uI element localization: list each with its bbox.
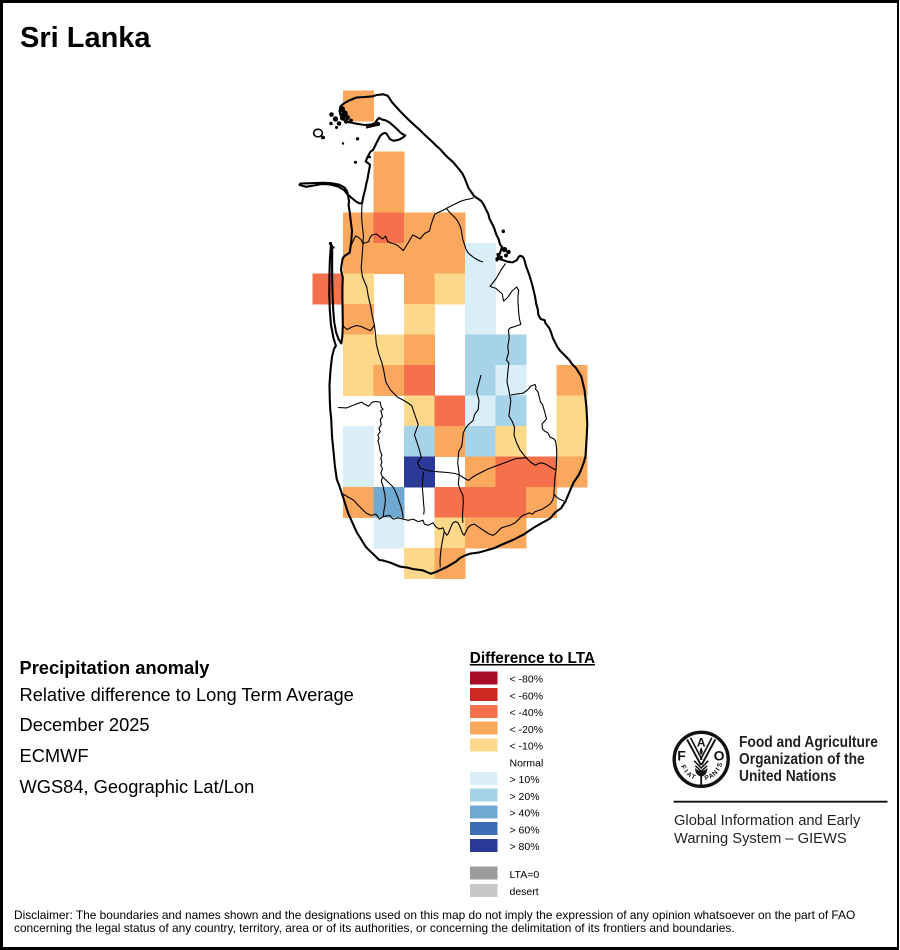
svg-text:> 20%: > 20% [510, 791, 540, 803]
svg-text:O: O [714, 748, 725, 764]
svg-text:> 10%: > 10% [510, 774, 540, 786]
svg-text:< -20%: < -20% [510, 724, 544, 736]
svg-text:desert: desert [510, 886, 539, 898]
svg-text:Normal: Normal [510, 757, 544, 769]
svg-text:> 60%: > 60% [510, 824, 540, 836]
svg-text:F: F [677, 748, 686, 764]
svg-text:> 80%: > 80% [510, 841, 540, 853]
svg-text:> 40%: > 40% [510, 808, 540, 820]
svg-text:A: A [697, 735, 706, 749]
svg-text:Difference to LTA: Difference to LTA [470, 650, 595, 667]
svg-text:< -40%: < -40% [510, 707, 544, 719]
svg-text:< -60%: < -60% [510, 690, 544, 702]
svg-text:< -10%: < -10% [510, 741, 544, 753]
svg-text:LTA=0: LTA=0 [510, 869, 540, 881]
svg-text:< -80%: < -80% [510, 674, 544, 686]
